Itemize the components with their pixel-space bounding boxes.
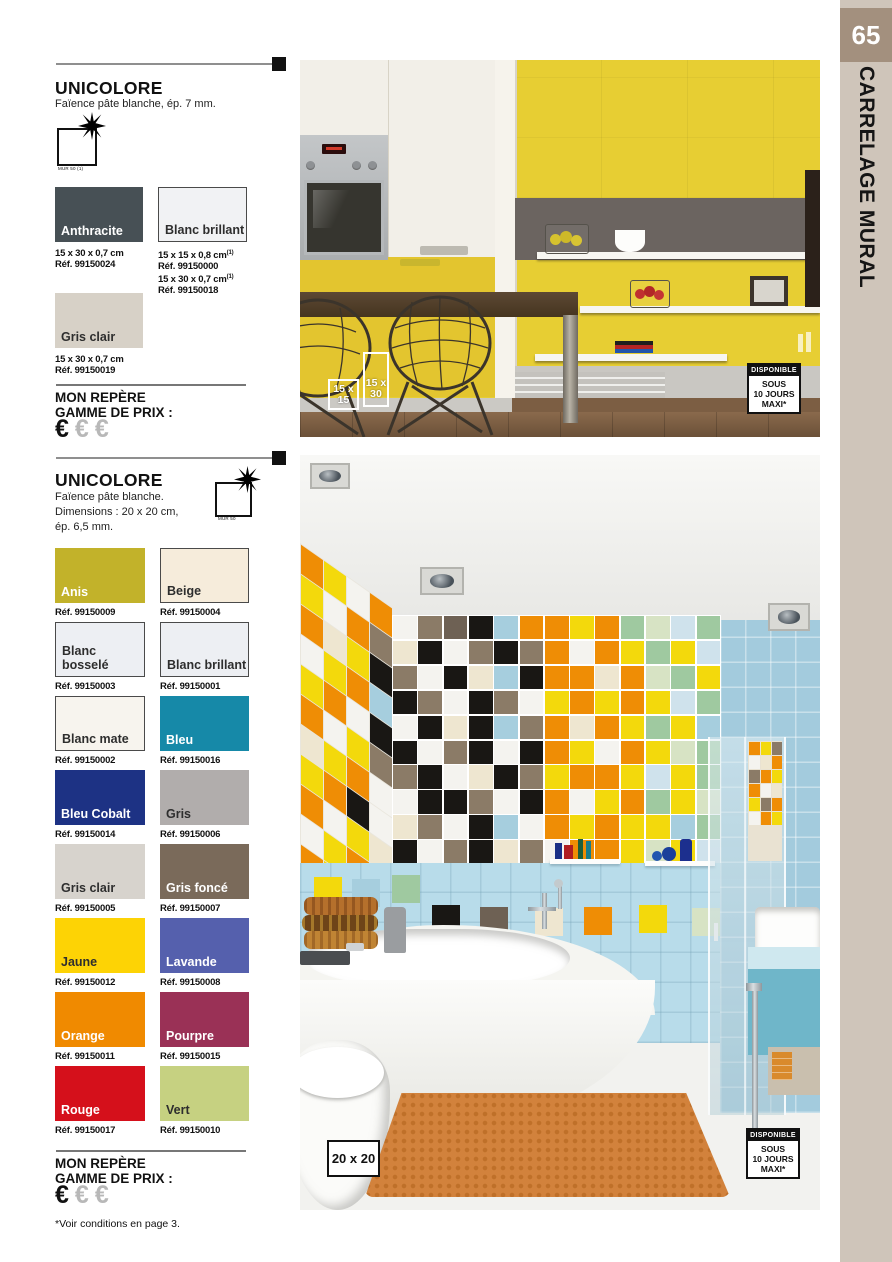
vanity-counter: [748, 947, 820, 1055]
bathroom-photo: 20 x 20 DISPONIBLE SOUS 10 JOURS MAXI*: [300, 455, 820, 1210]
size-footref: (1): [227, 250, 234, 256]
mosaic-tile: [761, 812, 772, 825]
swatch-ref: Réf. 99150014: [55, 829, 145, 840]
mosaic-tile: [772, 770, 782, 783]
mosaic-tile: [444, 815, 468, 838]
tub-faucet: [542, 893, 547, 929]
swatch-color: Pourpre: [160, 992, 249, 1047]
mosaic-tile-wall: [392, 615, 721, 863]
mosaic-tile: [494, 616, 518, 639]
swatch-anthracite: Anthracite 15 x 30 x 0,7 cm Réf. 9915002…: [55, 187, 143, 270]
swatch-name: Beige: [167, 584, 201, 598]
mosaic-tile: [697, 691, 721, 714]
swatch-color: Orange: [55, 992, 145, 1047]
euro-inactive: €: [75, 1181, 95, 1209]
mosaic-tile: [772, 812, 782, 825]
mosaic-tile: [494, 790, 518, 813]
mosaic-tile: [444, 741, 468, 764]
euro-active: €: [55, 415, 75, 443]
footnote: *Voir conditions en page 3.: [55, 1218, 180, 1230]
section2-description: Faïence pâte blanche. Dimensions : 20 x …: [55, 490, 179, 535]
swatch-ref: Réf. 99150019: [55, 365, 143, 376]
mosaic-tile: [444, 790, 468, 813]
spotlight: [420, 567, 464, 595]
mosaic-tile: [671, 641, 695, 664]
swatch-name: Blanc bosselé: [62, 644, 144, 672]
size-badge-20x20: 20 x 20: [327, 1140, 380, 1177]
mosaic-tile: [545, 691, 569, 714]
mosaic-tile: [545, 815, 569, 838]
desc-line: ép. 6,5 mm.: [55, 520, 179, 535]
mosaic-tile: [646, 641, 670, 664]
mosaic-tile: [545, 666, 569, 689]
mosaic-tile: [621, 815, 645, 838]
mosaic-tile: [545, 790, 569, 813]
mosaic-tile: [418, 790, 442, 813]
section1-rule: [56, 63, 273, 65]
mosaic-tile: [697, 716, 721, 739]
swatch-beige: BeigeRéf. 99150004: [160, 548, 249, 618]
swatch-ref: Réf. 99150010: [160, 1125, 249, 1136]
availability-header: DISPONIBLE: [749, 365, 799, 376]
mosaic-tile: [697, 641, 721, 664]
swatch-orange: OrangeRéf. 99150011: [55, 992, 145, 1062]
mosaic-tile: [671, 666, 695, 689]
mosaic-tile: [418, 765, 442, 788]
availability-badge: DISPONIBLE SOUS 10 JOURS MAXI*: [746, 1128, 800, 1179]
swatch-ref: Réf. 99150000: [158, 261, 247, 272]
swatch-ref: Réf. 99150012: [55, 977, 145, 988]
swatch-ref: Réf. 99150001: [160, 681, 249, 692]
page-number-text: 65: [852, 20, 881, 51]
swatch-gris-fonc-: Gris foncéRéf. 99150007: [160, 844, 249, 914]
availability-line: MAXI*: [748, 1164, 798, 1174]
mosaic-tile: [570, 815, 594, 838]
mosaic-tile: [621, 741, 645, 764]
mosaic-tile: [520, 741, 544, 764]
mosaic-tile: [444, 616, 468, 639]
swatch-ref: Réf. 99150004: [160, 607, 249, 618]
mosaic-tile: [494, 691, 518, 714]
mosaic-tile: [469, 616, 493, 639]
mosaic-tile: [621, 765, 645, 788]
soap: [346, 943, 364, 951]
mosaic-tile: [444, 691, 468, 714]
availability-line: MAXI*: [749, 399, 799, 409]
swatch-lavande: LavandeRéf. 99150008: [160, 918, 249, 988]
section1-description: Faïence pâte blanche, ép. 7 mm.: [55, 97, 216, 112]
swatch-color: Gris foncé: [160, 844, 249, 899]
mosaic-tile: [393, 716, 417, 739]
blue-vase: [680, 839, 692, 861]
shower-niche: [748, 741, 782, 861]
mosaic-tile: [595, 666, 619, 689]
mosaic-tile: [520, 616, 544, 639]
size-badge-15x30: 15 x 30: [363, 352, 389, 407]
swatch-name: Rouge: [61, 1103, 100, 1117]
section2-rule-square: [272, 451, 286, 465]
ceiling: [300, 455, 820, 620]
mosaic-tile: [418, 815, 442, 838]
swatch-size: 15 x 30 x 0,7 cm: [55, 248, 143, 259]
swatch-ref: Réf. 99150005: [55, 903, 145, 914]
swatch-color: Blanc brillant: [158, 187, 247, 242]
swatch-name: Blanc brillant: [167, 658, 246, 672]
euro-inactive: €: [95, 415, 115, 443]
mosaic-tile: [761, 798, 772, 811]
swatch-name: Gris foncé: [166, 881, 228, 895]
mosaic-tile: [469, 716, 493, 739]
swatch-ref: Réf. 99150017: [55, 1125, 145, 1136]
mosaic-tile: [621, 716, 645, 739]
mosaic-tile: [621, 641, 645, 664]
mosaic-tile: [749, 742, 760, 755]
mosaic-tile: [621, 840, 645, 863]
bottle: [555, 843, 562, 859]
mosaic-tile: [621, 790, 645, 813]
size-text: 20 x 20: [332, 1151, 375, 1166]
towel: [304, 931, 378, 949]
mosaic-tile: [772, 742, 782, 755]
swatch-color: Lavande: [160, 918, 249, 973]
mosaic-tile: [761, 756, 772, 769]
mosaic-tile: [671, 741, 695, 764]
shelf: [645, 861, 715, 866]
mosaic-tile: [595, 815, 619, 838]
desc-line: Faïence pâte blanche.: [55, 490, 179, 505]
sparkle-icon: [234, 466, 261, 493]
size-text: 15 x 15 x 0,8 cm: [158, 250, 227, 261]
mosaic-tile: [469, 815, 493, 838]
desc-line: Dimensions : 20 x 20 cm,: [55, 505, 179, 520]
page-number: 65: [840, 8, 892, 62]
mosaic-tile: [520, 765, 544, 788]
section-edge-label: CARRELAGE MURAL: [843, 66, 889, 336]
mosaic-tile: [469, 790, 493, 813]
swatch-ref: Réf. 99150006: [160, 829, 249, 840]
mosaic-tile: [418, 616, 442, 639]
swatch-rouge: RougeRéf. 99150017: [55, 1066, 145, 1136]
mosaic-tile: [520, 666, 544, 689]
towel: [304, 897, 378, 915]
swatch-name: Vert: [166, 1103, 190, 1117]
mosaic-tile: [671, 790, 695, 813]
mosaic-tile: [749, 784, 760, 797]
mosaic-tile: [646, 616, 670, 639]
swatch-ref: Réf. 99150002: [55, 755, 145, 766]
mosaic-tile: [671, 691, 695, 714]
mosaic-tile: [494, 765, 518, 788]
divider: [56, 384, 246, 386]
mosaic-tile: [393, 765, 417, 788]
spotlight: [768, 603, 810, 631]
swatch-gris: GrisRéf. 99150006: [160, 770, 249, 840]
mosaic-tile: [444, 716, 468, 739]
shelf: [550, 859, 620, 864]
mosaic-tile: [418, 691, 442, 714]
swatch-ref: Réf. 99150018: [158, 285, 247, 296]
swatch-name: Anthracite: [61, 224, 123, 238]
swatch-ref: Réf. 99150007: [160, 903, 249, 914]
availability-line: SOUS: [748, 1144, 798, 1154]
mosaic-tile: [570, 790, 594, 813]
size-badge-15x15: 15 x 15: [328, 379, 359, 410]
euro-active: €: [55, 1181, 75, 1209]
swatch-color: Gris clair: [55, 293, 143, 348]
mosaic-tile: [469, 691, 493, 714]
mosaic-tile: [646, 666, 670, 689]
mosaic-tile: [545, 765, 569, 788]
swatch-ref: Réf. 99150009: [55, 607, 145, 618]
mosaic-tile: [393, 641, 417, 664]
swatch-name: Bleu: [166, 733, 193, 747]
floor-faucet-spout: [746, 983, 762, 991]
mosaic-tile: [469, 641, 493, 664]
mosaic-tile: [520, 641, 544, 664]
swatch-name: Orange: [61, 1029, 105, 1043]
mosaic-tile: [646, 765, 670, 788]
swatch-color: Bleu Cobalt: [55, 770, 145, 825]
mosaic-tile: [621, 616, 645, 639]
mosaic-tile: [761, 770, 772, 783]
mosaic-tile: [646, 716, 670, 739]
mosaic-tile: [595, 641, 619, 664]
mosaic-tile: [570, 691, 594, 714]
spotlight: [310, 463, 350, 489]
swatch-name: Gris clair: [61, 881, 115, 895]
blue-ball: [662, 847, 676, 861]
mosaic-tile: [621, 691, 645, 714]
section2-title: UNICOLORE: [55, 470, 163, 491]
mosaic-tile: [393, 666, 417, 689]
price-line1: MON REPÈRE: [55, 390, 173, 405]
shower-handle: [714, 923, 718, 941]
price-scale-euros: €€€: [55, 415, 115, 444]
size-line: 15: [338, 395, 350, 406]
availability-line: SOUS: [749, 379, 799, 389]
mosaic-tile: [418, 641, 442, 664]
mosaic-tile: [646, 815, 670, 838]
swatch-gris-clair-15: Gris clair 15 x 30 x 0,7 cm Réf. 9915001…: [55, 293, 143, 376]
mosaic-tile: [749, 770, 760, 783]
glass-seam: [744, 737, 746, 1115]
swatch-ref: Réf. 99150011: [55, 1051, 145, 1062]
swatch-color: Anis: [55, 548, 145, 603]
swatch-color: Anthracite: [55, 187, 143, 242]
bottle: [586, 841, 591, 859]
mosaic-tile: [469, 741, 493, 764]
mosaic-tile: [545, 641, 569, 664]
swatch-color: Blanc mate: [55, 696, 145, 751]
price-line1: MON REPÈRE: [55, 1156, 173, 1171]
mosaic-tile: [418, 716, 442, 739]
wand-head: [554, 879, 563, 888]
swatch-name: Blanc mate: [62, 732, 129, 746]
mosaic-tile: [761, 742, 772, 755]
swatch-anis: AnisRéf. 99150009: [55, 548, 145, 618]
bottle: [578, 839, 583, 859]
swatch-pourpre: PourpreRéf. 99150015: [160, 992, 249, 1062]
mosaic-tile: [772, 784, 782, 797]
swatch-name: Gris: [166, 807, 191, 821]
swatch-vert: VertRéf. 99150010: [160, 1066, 249, 1136]
vanity-cabinet: [768, 1047, 820, 1095]
mosaic-tile: [393, 691, 417, 714]
mosaic-tile: [772, 756, 782, 769]
mosaic-tile: [418, 840, 442, 863]
mosaic-tile: [671, 765, 695, 788]
swatch-ref: Réf. 99150003: [55, 681, 145, 692]
mosaic-tile: [393, 815, 417, 838]
swatch-blanc-brillant-15: Blanc brillant 15 x 15 x 0,8 cm(1) Réf. …: [158, 187, 247, 296]
mosaic-tile: [570, 765, 594, 788]
mosaic-tile: [570, 641, 594, 664]
swatch-color: Beige: [160, 548, 249, 603]
swatch-name: Blanc brillant: [165, 223, 244, 237]
mosaic-tile: [595, 716, 619, 739]
mosaic-tile: [671, 716, 695, 739]
mosaic-tile: [671, 616, 695, 639]
towel: [302, 915, 378, 931]
tray: [300, 951, 350, 965]
mosaic-tile: [469, 840, 493, 863]
bottle: [564, 845, 573, 859]
mosaic-tile: [749, 798, 760, 811]
mosaic-tile: [520, 815, 544, 838]
mosaic-tile: [697, 616, 721, 639]
swatch-color: Gris: [160, 770, 249, 825]
floor-faucet: [752, 990, 758, 1145]
mosaic-tile: [494, 641, 518, 664]
mosaic-tile: [595, 616, 619, 639]
swatch-ref: Réf. 99150008: [160, 977, 249, 988]
mosaic-tile: [469, 666, 493, 689]
shower-wand: [558, 885, 562, 909]
swatch-color: Bleu: [160, 696, 249, 751]
mosaic-tile: [545, 716, 569, 739]
availability-line: 10 JOURS: [748, 1154, 798, 1164]
mosaic-tile: [646, 691, 670, 714]
mosaic-tile: [595, 765, 619, 788]
availability-body: SOUS 10 JOURS MAXI*: [749, 376, 799, 412]
mosaic-tile: [469, 765, 493, 788]
size-line: 30: [370, 389, 382, 400]
swatch-size: 15 x 15 x 0,8 cm(1): [158, 248, 247, 261]
mosaic-tile: [494, 815, 518, 838]
mosaic-tile: [570, 716, 594, 739]
swatch-ref: Réf. 99150016: [160, 755, 249, 766]
mosaic-tile: [749, 756, 760, 769]
availability-line: 10 JOURS: [749, 389, 799, 399]
swatch-color: Gris clair: [55, 844, 145, 899]
mosaic-tile: [570, 616, 594, 639]
mosaic-tile: [570, 741, 594, 764]
kitchen-photo: 15 x 15 15 x 30 DISPONIBLE SOUS 10 JOURS…: [300, 60, 820, 437]
mosaic-tile: [444, 765, 468, 788]
mosaic-tile: [697, 666, 721, 689]
mosaic-tile: [646, 790, 670, 813]
price-scale-euros: €€€: [55, 1181, 115, 1210]
swatch-grid: AnisRéf. 99150009BeigeRéf. 99150004Blanc…: [55, 548, 255, 1148]
swatch-blanc-bossel-: Blanc bosseléRéf. 99150003: [55, 622, 145, 692]
orange-bath-mat: [365, 1093, 730, 1197]
mosaic-tile: [570, 666, 594, 689]
tile-icon-caption: MUR 50 (1): [58, 166, 83, 171]
divider: [56, 1150, 246, 1152]
swatch-blanc-brillant: Blanc brillantRéf. 99150001: [160, 622, 249, 692]
swatch-size: 15 x 30 x 0,7 cm(1): [158, 272, 247, 285]
swatch-bleu-cobalt: Bleu CobaltRéf. 99150014: [55, 770, 145, 840]
mosaic-tile: [444, 840, 468, 863]
mosaic-tile: [494, 666, 518, 689]
swatch-color: Jaune: [55, 918, 145, 973]
mosaic-tile: [545, 616, 569, 639]
mosaic-tile: [444, 641, 468, 664]
tub-spout: [528, 907, 556, 911]
section2-rule: [56, 457, 273, 459]
availability-badge: DISPONIBLE SOUS 10 JOURS MAXI*: [747, 363, 801, 414]
swatch-ref: Réf. 99150015: [160, 1051, 249, 1062]
swatch-name: Pourpre: [166, 1029, 214, 1043]
blue-ball: [652, 851, 662, 861]
soap-dispenser: [384, 907, 406, 953]
size-line: 15 x: [333, 384, 353, 395]
section1-rule-square: [272, 57, 286, 71]
swatch-color: Vert: [160, 1066, 249, 1121]
mosaic-tile: [418, 666, 442, 689]
mosaic-tile: [494, 840, 518, 863]
mosaic-tile: [595, 741, 619, 764]
size-footref: (1): [227, 274, 234, 280]
swatch-color: Blanc bosselé: [55, 622, 145, 677]
mosaic-tile: [520, 716, 544, 739]
mosaic-tile: [520, 790, 544, 813]
swatch-gris-clair: Gris clairRéf. 99150005: [55, 844, 145, 914]
swatch-name: Jaune: [61, 955, 97, 969]
euro-inactive: €: [75, 415, 95, 443]
swatch-name: Lavande: [166, 955, 217, 969]
mosaic-tile: [393, 790, 417, 813]
swatch-name: Gris clair: [61, 330, 115, 344]
mosaic-tile: [621, 666, 645, 689]
mosaic-tile: [749, 812, 760, 825]
mosaic-tile: [494, 716, 518, 739]
mosaic-tile: [595, 691, 619, 714]
euro-inactive: €: [95, 1181, 115, 1209]
mosaic-tile: [545, 741, 569, 764]
tile-icon-caption: MUR 50: [218, 516, 236, 521]
swatch-name: Anis: [61, 585, 88, 599]
swatch-color: Blanc brillant: [160, 622, 249, 677]
mosaic-tile: [646, 741, 670, 764]
swatch-jaune: JauneRéf. 99150012: [55, 918, 145, 988]
sparkle-icon: [78, 112, 106, 140]
swatch-blanc-mate: Blanc mateRéf. 99150002: [55, 696, 145, 766]
mosaic-tile: [392, 875, 420, 903]
mosaic-tile: [520, 691, 544, 714]
mosaic-tile: [393, 840, 417, 863]
mosaic-tile: [393, 616, 417, 639]
swatch-size: 15 x 30 x 0,7 cm: [55, 354, 143, 365]
mosaic-tile: [761, 784, 772, 797]
mosaic-tile: [595, 790, 619, 813]
swatch-color: Rouge: [55, 1066, 145, 1121]
mosaic-tile: [418, 741, 442, 764]
catalog-page: 65 CARRELAGE MURAL UNICOLORE Faïence pât…: [0, 0, 892, 1262]
size-text: 15 x 30 x 0,7 cm: [158, 274, 227, 285]
swatch-name: Bleu Cobalt: [61, 807, 130, 821]
section1-title: UNICOLORE: [55, 78, 163, 99]
